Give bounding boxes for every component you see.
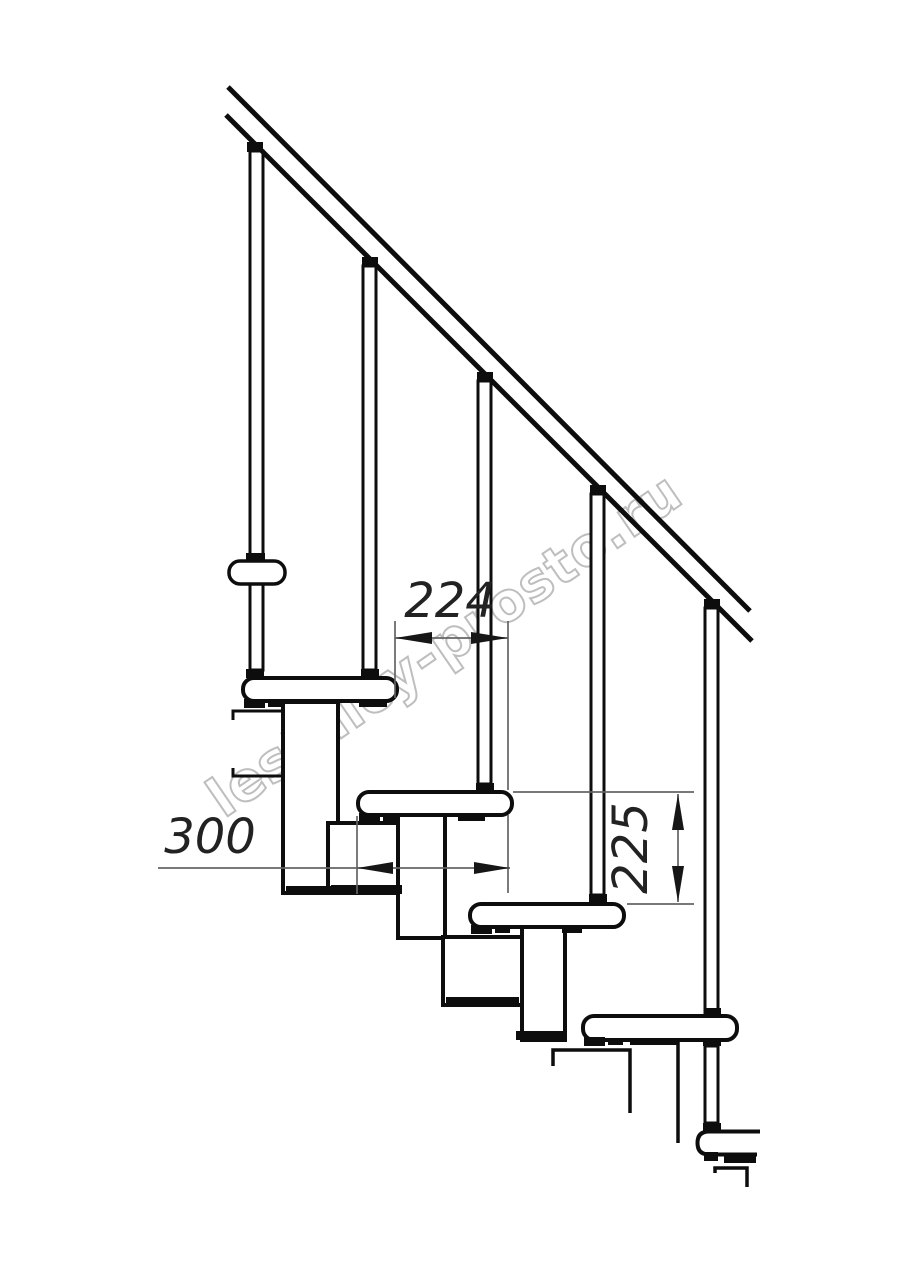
cut-module-outline-3	[715, 1168, 747, 1187]
staircase-technical-drawing: lestnicy-prosto.ru	[0, 0, 914, 1280]
foot-pad	[704, 1152, 718, 1161]
watermark: lestnicy-prosto.ru	[196, 460, 694, 830]
rail-bracket	[229, 553, 285, 584]
baluster-1	[250, 151, 263, 670]
foot-pad	[495, 926, 510, 933]
module-block-1-pad	[331, 885, 402, 894]
foot-pad	[359, 699, 387, 707]
foot-pad	[608, 1038, 623, 1045]
module-column-1-pad	[286, 886, 335, 895]
pipe-top-connector	[703, 1038, 721, 1046]
foot-pad	[268, 700, 283, 707]
module-block-2	[443, 937, 522, 1005]
foot-pad	[383, 814, 398, 821]
module-column-2	[398, 813, 445, 938]
baluster-5-base-connector	[704, 1008, 721, 1016]
baluster-4-base-connector	[589, 894, 607, 904]
dimension-224-label: 224	[404, 573, 496, 629]
cut-module-outline-1	[553, 1050, 630, 1113]
dimension-225-label: 225	[603, 802, 659, 894]
foot-pad	[458, 813, 485, 821]
rail-bracket-pill	[229, 561, 285, 584]
dimension-225: 225	[513, 792, 694, 904]
platform-cut-top-line	[233, 711, 287, 720]
tread-4	[583, 1016, 737, 1040]
tread-1	[243, 678, 397, 701]
foot-pad	[562, 925, 582, 933]
arrow-right-icon	[474, 862, 510, 874]
arrow-down-icon	[672, 866, 684, 902]
module-column-3	[522, 925, 565, 1040]
baluster-2-base-connector	[361, 669, 379, 678]
foot-pad	[584, 1037, 605, 1046]
tread-5	[698, 1132, 761, 1155]
foot-pad	[244, 699, 265, 708]
module-column-3-pad	[516, 1031, 563, 1040]
module-block-1	[328, 823, 405, 893]
arrow-up-icon	[672, 794, 684, 830]
baluster-5	[705, 608, 718, 1016]
foot-pad	[724, 1153, 756, 1163]
tread-2	[358, 792, 512, 815]
watermark-text: lestnicy-prosto.ru	[196, 460, 694, 830]
module-block-2-pad	[446, 997, 519, 1006]
foot-pad	[471, 925, 492, 934]
baluster-3-base-connector	[476, 783, 494, 792]
drawing-canvas: lestnicy-prosto.ru	[0, 0, 914, 1280]
tread-3	[470, 904, 624, 927]
pipe-bottom-connector	[703, 1123, 721, 1131]
baluster-2	[363, 266, 376, 670]
step5-support-pipe	[705, 1046, 718, 1123]
dimension-300-label: 300	[164, 809, 256, 865]
rail-bracket-clamp	[246, 553, 265, 562]
foot-pad	[359, 813, 380, 822]
baluster-1-base-connector	[246, 669, 264, 678]
